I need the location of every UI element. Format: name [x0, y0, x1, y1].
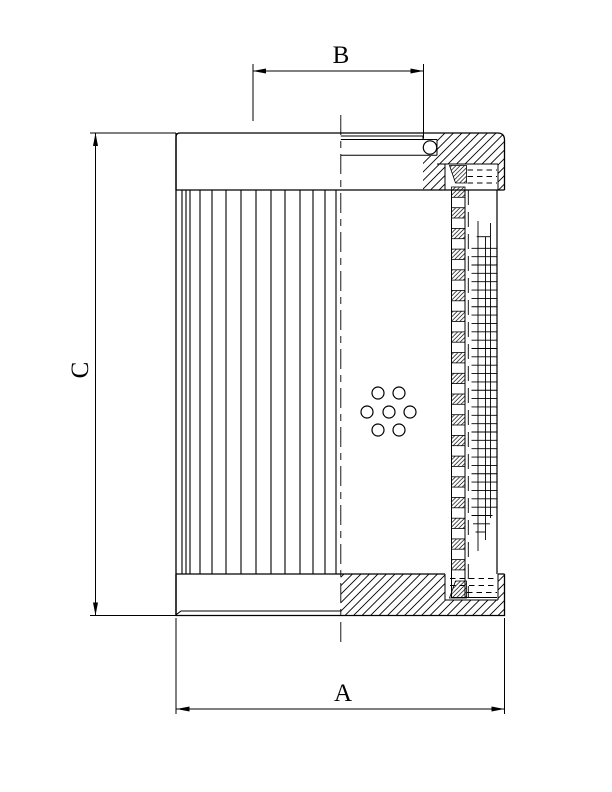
top-end-cap	[176, 133, 505, 190]
top-seal-wedge	[450, 166, 467, 184]
dimension-c: C	[67, 133, 176, 616]
core-tube-checker	[452, 187, 466, 570]
o-ring	[423, 141, 436, 154]
dimension-a: A	[176, 618, 505, 714]
dim-c-label: C	[67, 362, 94, 379]
bottom-seal-wedge	[450, 581, 467, 598]
dim-a-label: A	[334, 680, 352, 707]
media-mesh	[472, 221, 498, 551]
dimension-b: B	[253, 42, 424, 139]
top-cap-bore-lines	[341, 136, 437, 155]
filter-element-drawing: B C A	[0, 0, 612, 792]
bottom-cap-hatch-fill	[341, 574, 505, 616]
dim-b-label: B	[333, 42, 350, 69]
bottom-end-cap	[176, 574, 505, 616]
pleat-lines	[182, 190, 336, 574]
bottom-cap-lip-lines	[176, 611, 341, 615]
drawing-sheet: B C A	[0, 0, 612, 792]
perforation-holes	[361, 387, 416, 436]
